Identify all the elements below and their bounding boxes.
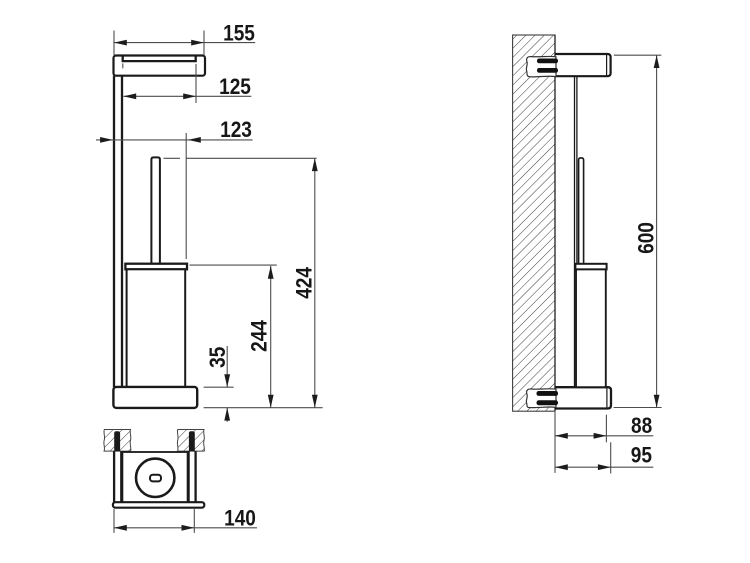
svg-text:155: 155 [223,20,255,45]
svg-text:424: 424 [292,267,317,299]
svg-text:35: 35 [205,347,230,368]
svg-text:600: 600 [634,222,659,254]
svg-text:140: 140 [224,506,256,531]
svg-text:244: 244 [247,320,272,352]
svg-text:123: 123 [220,117,252,142]
svg-text:95: 95 [631,443,652,468]
svg-text:88: 88 [631,413,652,438]
svg-text:125: 125 [219,74,251,99]
